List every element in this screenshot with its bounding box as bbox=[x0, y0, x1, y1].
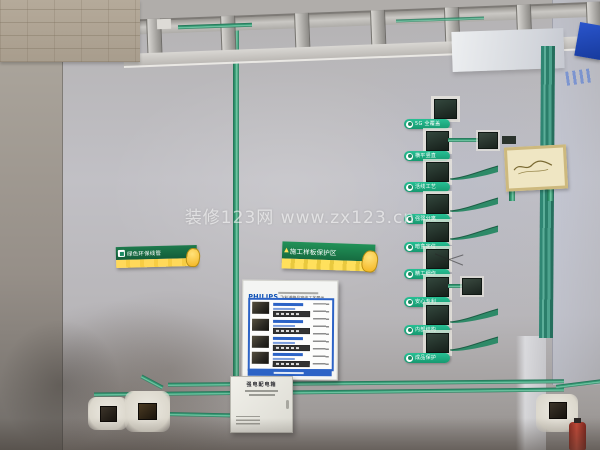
poster-content-frame bbox=[248, 298, 335, 372]
circuit-label-tag: 5G 全覆盖 bbox=[404, 119, 450, 129]
circuit-label-tag: 横平竖直 bbox=[404, 151, 450, 161]
conduit-bend-cover bbox=[450, 163, 500, 181]
sign-title: 绿色环保线管 bbox=[127, 248, 161, 257]
warning-triangle-icon: ▲ bbox=[284, 246, 289, 253]
junction-box bbox=[426, 277, 449, 297]
circuit-label-text: 横平竖直 bbox=[415, 153, 436, 159]
plaque-engraving bbox=[507, 148, 559, 183]
keel-stud bbox=[220, 16, 236, 53]
box-text-line bbox=[245, 390, 278, 392]
process-photo bbox=[252, 352, 269, 364]
box-text-line bbox=[249, 394, 275, 396]
poster-header: PHILIPS飞利浦精品穿线工艺展示 bbox=[248, 284, 333, 297]
row-label-line2 bbox=[273, 342, 295, 344]
circuit-label-text: 5G 全覆盖 bbox=[415, 121, 440, 127]
row-label-line bbox=[273, 320, 303, 323]
box-handle bbox=[286, 400, 289, 409]
conduit-bend-cover bbox=[450, 306, 500, 324]
keel-stud bbox=[370, 10, 386, 47]
row-label-line bbox=[273, 353, 303, 356]
process-photo bbox=[252, 302, 269, 314]
circuit-label-tag: 成品保护 bbox=[404, 353, 450, 363]
blue-sign-board bbox=[574, 22, 600, 60]
distribution-box-title: 强电配电箱 bbox=[231, 381, 292, 388]
junction-box bbox=[426, 305, 449, 325]
branch-conduit bbox=[448, 138, 478, 142]
poster-subtitle-line bbox=[278, 292, 318, 294]
junction-box bbox=[426, 162, 449, 182]
process-photo bbox=[252, 336, 269, 348]
conduit-bend-cover bbox=[450, 334, 500, 352]
circuit-row: 成品保护 bbox=[404, 333, 544, 365]
row-label-line2 bbox=[273, 308, 295, 310]
poster-spec-list bbox=[313, 303, 329, 365]
brand-badge-icon bbox=[406, 153, 413, 160]
circuit-label-tag: 活线工艺 bbox=[404, 182, 450, 192]
row-label-line2 bbox=[273, 325, 295, 327]
poster-row bbox=[252, 352, 310, 367]
circuit-label-text: 成品保护 bbox=[415, 355, 436, 361]
junction-box-secondary bbox=[462, 278, 482, 295]
poster-row bbox=[252, 302, 310, 317]
ceiling-junction-box bbox=[157, 19, 171, 29]
row-caption-strip bbox=[273, 345, 310, 351]
junction-box-secondary bbox=[478, 132, 498, 149]
warning-sign-left: 绿色环保线管 bbox=[116, 245, 198, 268]
warning-sign-middle: ▲ 施工样板保护区 bbox=[282, 241, 376, 271]
row-label-line2 bbox=[273, 358, 295, 360]
brand-badge-icon bbox=[406, 184, 413, 191]
poster-row bbox=[252, 336, 310, 351]
branch-conduit bbox=[448, 284, 462, 288]
keel-stud bbox=[294, 13, 310, 50]
construction-site-photo: 5G 全覆盖 横平竖直 活线工艺 强弱分离 暗盒定位 精工细作 安心专利 内部结 bbox=[0, 0, 600, 450]
floor-shadow bbox=[0, 418, 600, 450]
philips-display-board: PHILIPS飞利浦精品穿线工艺展示 bbox=[242, 280, 339, 381]
junction-box-far bbox=[502, 136, 516, 144]
circuit-row: 5G 全覆盖 bbox=[404, 99, 544, 131]
row-caption-strip bbox=[273, 361, 310, 367]
row-caption-strip bbox=[273, 328, 310, 334]
brand-badge-icon bbox=[406, 121, 413, 128]
mascot-figure bbox=[185, 247, 201, 267]
brand-badge-icon bbox=[406, 355, 413, 362]
junction-box bbox=[426, 333, 449, 353]
row-label-line bbox=[273, 303, 303, 306]
circuit-label-text: 活线工艺 bbox=[415, 184, 436, 190]
brick-wall-corner bbox=[0, 0, 140, 62]
company-logo-icon bbox=[118, 250, 125, 257]
watermark: 装修123网 www.zx123.cn bbox=[0, 203, 600, 228]
poster-row bbox=[252, 319, 310, 334]
gold-plaque bbox=[504, 144, 568, 191]
sign-title: 施工样板保护区 bbox=[290, 245, 337, 257]
row-caption-strip bbox=[273, 311, 310, 317]
junction-box bbox=[434, 99, 457, 119]
junction-box bbox=[426, 131, 449, 151]
process-photo bbox=[252, 319, 269, 331]
row-label-line bbox=[273, 337, 303, 340]
socket-opening bbox=[549, 402, 567, 419]
